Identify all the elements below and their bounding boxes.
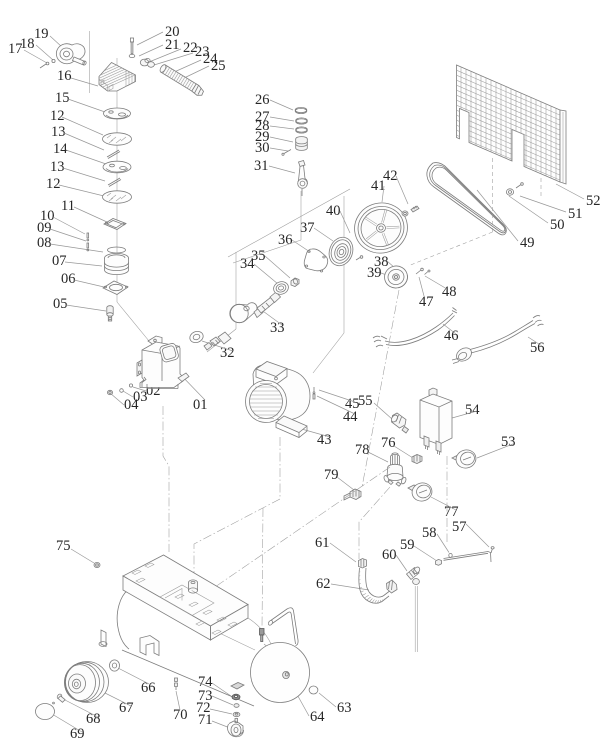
svg-text:61: 61 [315,535,330,551]
svg-text:58: 58 [422,525,437,541]
svg-text:77: 77 [444,504,459,520]
svg-text:01: 01 [193,397,208,413]
svg-text:48: 48 [442,284,457,300]
svg-text:49: 49 [520,235,535,251]
svg-text:57: 57 [452,519,467,535]
svg-text:55: 55 [358,393,373,409]
svg-text:13: 13 [51,124,66,140]
svg-text:26: 26 [255,92,270,108]
svg-text:13: 13 [50,159,65,175]
svg-text:05: 05 [53,296,68,312]
svg-text:40: 40 [326,203,341,219]
svg-text:51: 51 [568,206,583,222]
svg-text:75: 75 [56,538,71,554]
svg-text:33: 33 [270,320,285,336]
svg-text:67: 67 [119,700,134,716]
svg-text:54: 54 [465,402,480,418]
svg-text:06: 06 [61,271,76,287]
svg-text:15: 15 [55,90,70,106]
svg-text:69: 69 [70,726,85,742]
svg-text:78: 78 [355,442,370,458]
svg-text:04: 04 [124,397,139,413]
svg-text:66: 66 [141,680,156,696]
svg-text:71: 71 [198,712,213,728]
svg-text:64: 64 [310,709,325,725]
svg-text:50: 50 [550,217,565,233]
svg-text:09: 09 [37,220,52,236]
svg-text:79: 79 [324,467,339,483]
svg-text:16: 16 [57,68,72,84]
svg-text:12: 12 [50,108,65,124]
svg-text:70: 70 [173,707,188,723]
svg-text:34: 34 [240,256,255,272]
svg-text:14: 14 [53,141,68,157]
svg-text:63: 63 [337,700,352,716]
svg-text:25: 25 [211,58,226,74]
svg-text:18: 18 [20,36,35,52]
svg-text:31: 31 [254,158,269,174]
svg-text:56: 56 [530,340,545,356]
svg-text:42: 42 [383,168,398,184]
svg-text:43: 43 [317,432,332,448]
svg-text:68: 68 [86,711,101,727]
svg-text:30: 30 [255,140,270,156]
svg-text:52: 52 [586,193,601,209]
svg-text:07: 07 [52,253,67,269]
svg-text:39: 39 [367,265,382,281]
svg-text:19: 19 [34,26,49,42]
svg-text:08: 08 [37,235,52,251]
svg-text:47: 47 [419,294,434,310]
svg-text:11: 11 [61,198,75,214]
svg-text:60: 60 [382,547,397,563]
svg-text:37: 37 [300,220,315,236]
svg-text:76: 76 [381,435,396,451]
svg-text:12: 12 [46,176,61,192]
svg-text:59: 59 [400,537,415,553]
svg-text:62: 62 [316,576,331,592]
